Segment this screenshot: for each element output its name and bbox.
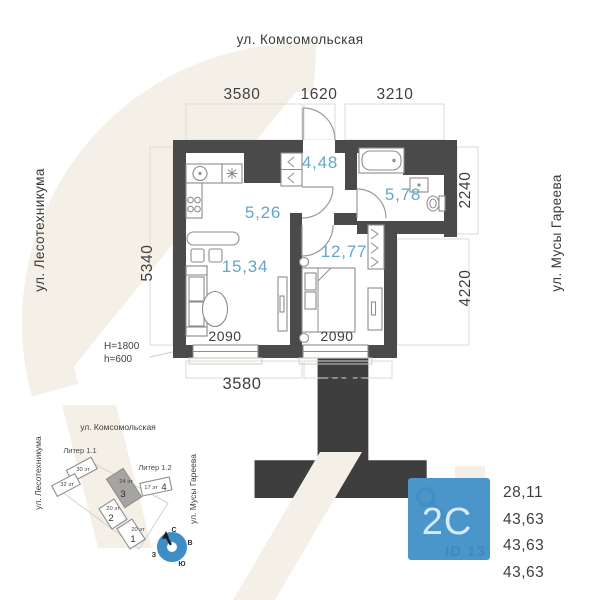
window-note-2: h=600 [104,354,133,365]
area-value-2: 43,63 [503,511,544,528]
stool-2 [209,249,222,262]
nightstand-2 [300,334,309,343]
site-street-top: ул. Комсомольская [80,422,156,432]
building-3-number: 3 [120,489,125,500]
building-32-floors: 32 эт [60,482,74,488]
room-area-bedroom: 12,77 [321,242,368,261]
room-area-living: 15,34 [222,257,269,276]
kitchen-cabinet [186,183,202,218]
block-label-1: Литер 1.1 [63,446,96,455]
room-area-bathroom: 5,78 [385,185,421,204]
compass-north: С [171,527,176,534]
street-top: ул. Комсомольская [237,32,364,47]
dim-window-2: 2090 [320,328,353,344]
hall-wardrobe-icon [281,153,302,186]
compass-east: В [187,540,192,547]
area-value-1: 28,11 [503,484,543,501]
snowflake-icon [227,168,238,179]
compass-hub [170,545,175,550]
dim-bottom-1: 3580 [222,375,261,393]
sink-drain [198,172,201,175]
compass-west: З [152,552,157,559]
room-area-kitchen: 5,26 [245,203,281,222]
building-1-floors: 20 эт [131,527,145,533]
dim-top-2: 1620 [301,86,338,103]
compass: С В Ю З [152,527,193,568]
compass-south: Ю [178,561,185,568]
dim-window-1: 2090 [208,328,241,344]
dim-top-3: 3210 [377,86,414,103]
kitchen-counter [186,164,222,183]
entrance-door [303,108,335,140]
floor-plan-page: 1 [0,0,600,600]
area-value-3: 43,63 [503,537,544,554]
building-30-floors: 30 эт [76,467,90,473]
stool-1 [191,249,204,262]
building-2-number: 2 [108,513,113,524]
dim-right-1: 2240 [457,172,474,209]
nightstand-1 [300,258,309,267]
building-1-number: 1 [130,534,135,545]
room-area-hall: 4,48 [302,153,338,172]
building-3-floors: 24 эт [119,479,133,485]
toilet-icon [427,196,445,211]
table-icon [203,292,228,327]
floor-plan-canvas: 1 [0,0,600,600]
dim-left: 5340 [139,245,156,282]
bed-icon [302,268,355,332]
tv-stand-icon [278,277,287,331]
dresser-icon [368,288,382,330]
bar-counter [187,232,239,245]
bedroom-wardrobe-icon [368,225,384,269]
window-note-1: H=1800 [104,341,140,352]
street-left: ул. Лесотехникума [32,168,47,292]
site-street-left: ул. Лесотехникума [33,436,43,510]
area-value-4: 43,63 [503,564,544,581]
building-2-floors: 20 эт [106,506,120,512]
plan-type-label: 2С [422,501,473,543]
dim-top-1: 3580 [224,86,261,103]
area-values: 28,11 43,63 43,63 43,63 [503,484,544,581]
bathtub-icon [359,148,404,173]
block-label-2: Литер 1.2 [138,463,171,472]
site-street-right: ул. Мусы Гареева [188,454,198,524]
id-watermark: ID 13 [445,543,486,560]
building-4-number: 4 [161,482,166,493]
dim-bottom-2: 2950 [325,375,364,393]
dim-right-2: 4220 [457,270,474,307]
street-right: ул. Мусы Гареева [549,174,564,292]
building-4-floors: 17 эт [144,485,158,491]
